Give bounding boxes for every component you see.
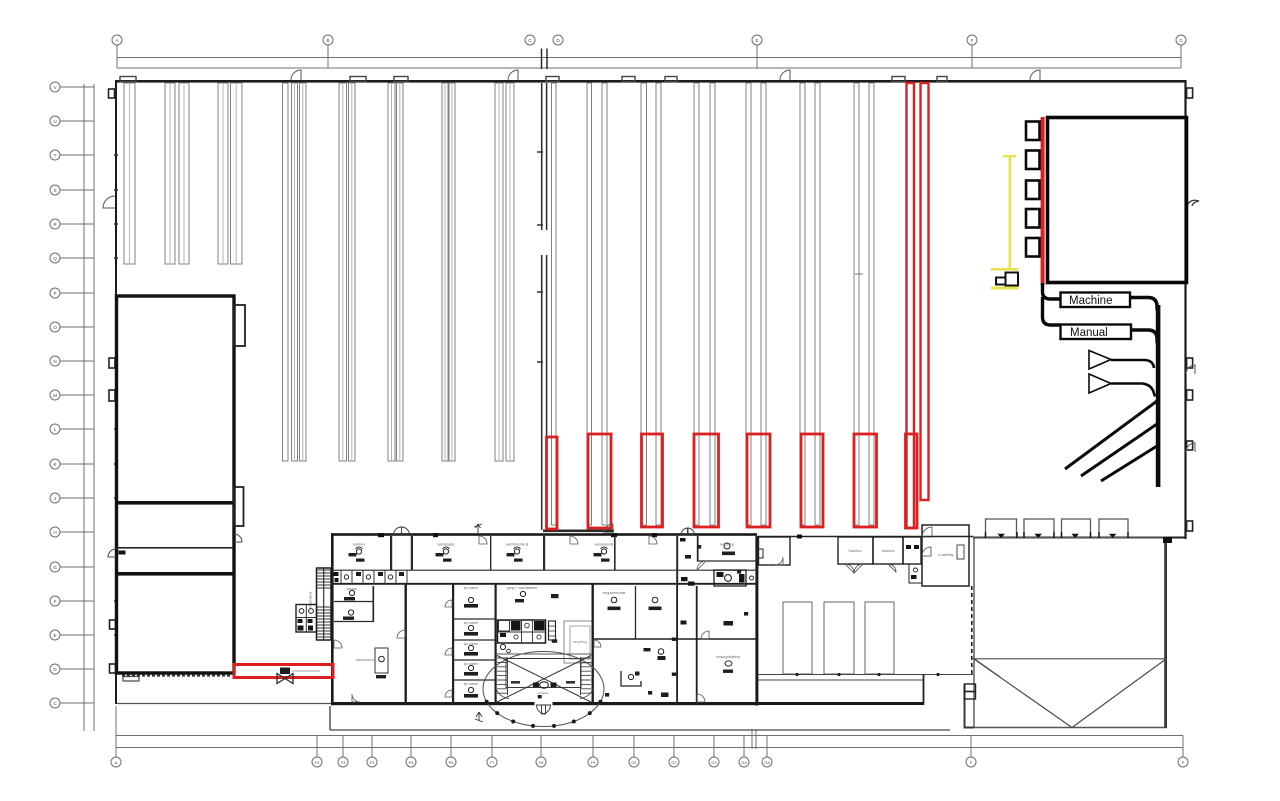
svg-text:L: L — [54, 427, 57, 432]
svg-text:G1: G1 — [631, 760, 637, 765]
svg-text:F7: F7 — [490, 760, 495, 765]
svg-text:trappenhuis: trappenhuis — [309, 591, 313, 608]
svg-text:spr kamer: spr kamer — [464, 662, 479, 666]
svg-text:P: P — [53, 291, 56, 296]
svg-text:G4: G4 — [741, 760, 747, 765]
svg-text:wachting: wachting — [720, 543, 734, 547]
svg-text:G2: G2 — [671, 760, 677, 765]
svg-text:F4: F4 — [370, 760, 375, 765]
svg-text:P: P — [1182, 760, 1185, 765]
svg-text:O: O — [53, 325, 57, 330]
svg-text:N: N — [53, 359, 56, 364]
svg-text:spr kamer: spr kamer — [464, 586, 479, 590]
svg-text:E: E — [53, 633, 56, 638]
svg-text:kantoor: kantoor — [353, 543, 366, 547]
svg-text:verkoopafdeling: verkoopafdeling — [716, 655, 740, 659]
svg-text:Q: Q — [53, 256, 57, 261]
svg-text:F6: F6 — [449, 760, 454, 765]
svg-text:recycling: recycling — [573, 640, 586, 644]
svg-text:werkplaats: werkplaats — [438, 543, 455, 547]
svg-text:T: T — [54, 153, 57, 158]
svg-text:G: G — [1179, 38, 1183, 43]
svg-text:e-afdeling: e-afdeling — [939, 553, 954, 557]
svg-text:B: B — [326, 38, 329, 43]
svg-text:spr kamer: spr kamer — [464, 682, 479, 686]
svg-text:F5: F5 — [409, 760, 414, 765]
svg-text:M: M — [53, 393, 57, 398]
svg-text:G3: G3 — [711, 760, 717, 765]
svg-text:Machine: Machine — [1069, 295, 1112, 307]
svg-text:F: F — [54, 599, 57, 604]
svg-text:vergaderruimte: vergaderruimte — [603, 591, 626, 595]
svg-text:F: F — [971, 38, 974, 43]
svg-text:F3: F3 — [341, 760, 346, 765]
svg-text:G: G — [53, 565, 57, 570]
svg-text:G5: G5 — [764, 760, 770, 765]
svg-text:F8: F8 — [539, 760, 544, 765]
svg-text:F9: F9 — [591, 760, 596, 765]
svg-text:J: J — [54, 496, 56, 501]
svg-text:spr kamer: spr kamer — [464, 642, 479, 646]
svg-text:gang + wachtkamer: gang + wachtkamer — [507, 586, 538, 590]
svg-text:spr kamer: spr kamer — [464, 621, 479, 625]
svg-text:kantoor: kantoor — [347, 587, 359, 591]
svg-text:Manual: Manual — [1070, 327, 1108, 339]
svg-text:Scanbox: Scanbox — [848, 549, 861, 553]
svg-text:U: U — [53, 119, 56, 124]
svg-text:A: A — [115, 760, 118, 765]
svg-text:S: S — [53, 188, 56, 193]
svg-text:receptie: receptie — [538, 691, 549, 695]
svg-text:H: H — [53, 530, 56, 535]
svg-text:F2: F2 — [315, 760, 320, 765]
svg-text:kantoortuin: kantoortuin — [356, 658, 373, 662]
svg-text:E: E — [755, 38, 758, 43]
svg-text:wasserij-KB: wasserij-KB — [595, 543, 614, 547]
svg-text:Scanbox: Scanbox — [881, 549, 894, 553]
svg-text:wachtruimte B: wachtruimte B — [506, 543, 529, 547]
